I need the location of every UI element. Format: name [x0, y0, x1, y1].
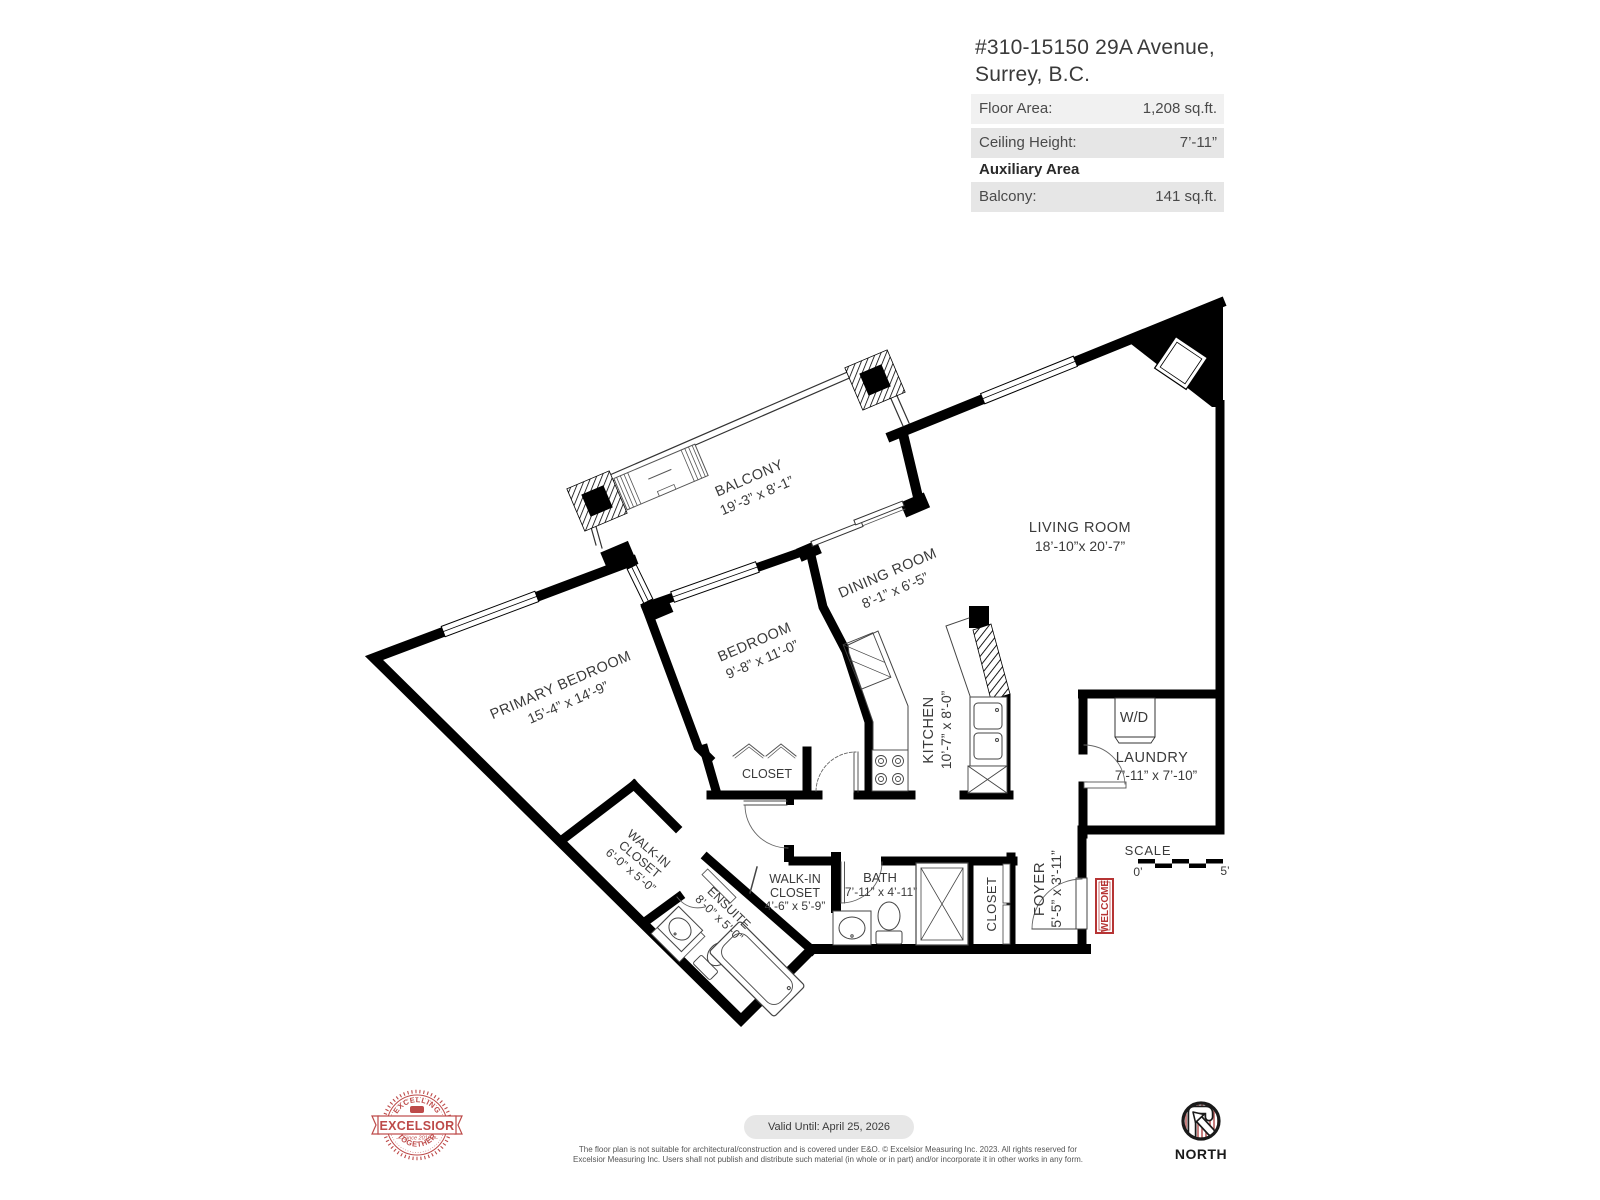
svg-text:CLOSET: CLOSET: [770, 886, 820, 900]
svg-text:BATH: BATH: [863, 870, 897, 885]
svg-text:LIVING ROOM: LIVING ROOM: [1029, 520, 1131, 536]
svg-text:7’-11” x 7’-10”: 7’-11” x 7’-10”: [1115, 768, 1197, 783]
svg-text:4’-6” x 5’-9”: 4’-6” x 5’-9”: [765, 899, 826, 913]
svg-text:LAUNDRY: LAUNDRY: [1116, 750, 1189, 766]
svg-text:WALK-IN: WALK-IN: [769, 872, 821, 886]
svg-text:W/D: W/D: [1120, 710, 1148, 726]
svg-text:7’-11” x 4’-11”: 7’-11” x 4’-11”: [845, 885, 917, 899]
svg-text:10’-7” x 8’-0”: 10’-7” x 8’-0”: [938, 690, 954, 769]
svg-text:KITCHEN: KITCHEN: [921, 696, 937, 763]
svg-text:5’: 5’: [1220, 864, 1229, 878]
svg-text:WELCOME: WELCOME: [1100, 880, 1111, 933]
svg-text:FOYER: FOYER: [1031, 862, 1048, 916]
svg-text:0’: 0’: [1133, 865, 1142, 879]
svg-text:EXCELSIOR: EXCELSIOR: [380, 1119, 455, 1133]
svg-text:— Since 2016 —: — Since 2016 —: [395, 1136, 438, 1142]
svg-text:5’-5” x 3’-11”: 5’-5” x 3’-11”: [1048, 850, 1064, 928]
svg-text:18’-10”x 20’-7”: 18’-10”x 20’-7”: [1035, 538, 1126, 554]
svg-text:CLOSET: CLOSET: [984, 876, 999, 931]
svg-text:SCALE: SCALE: [1125, 843, 1172, 858]
svg-text:CLOSET: CLOSET: [742, 767, 792, 781]
